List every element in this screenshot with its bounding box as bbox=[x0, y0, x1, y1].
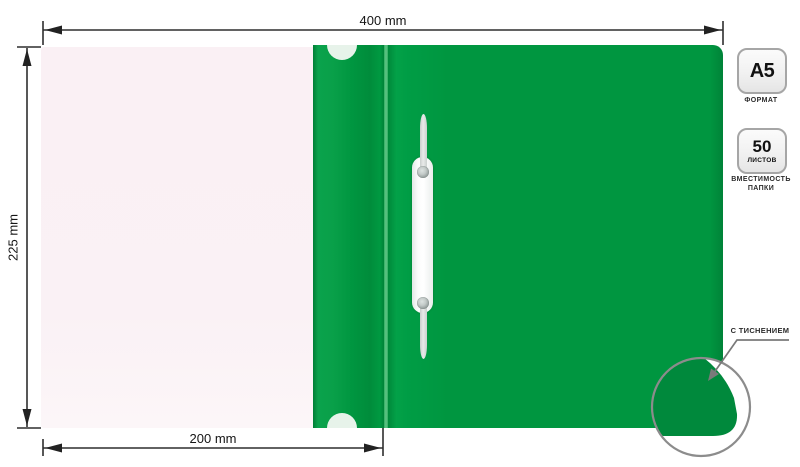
capacity-badge-unit: ЛИСТОВ bbox=[747, 157, 776, 164]
spine-top-notch bbox=[327, 45, 357, 60]
embossing-callout-label: С ТИСНЕНИЕМ bbox=[724, 326, 796, 335]
folder-back-cover bbox=[388, 45, 723, 428]
capacity-badge-caption: ВМЕСТИМОСТЬ ПАПКИ bbox=[722, 175, 800, 193]
format-badge-value: A5 bbox=[750, 61, 775, 81]
cover-width-dimension-label: 200 mm bbox=[163, 431, 263, 446]
binder-top-hole bbox=[417, 166, 429, 178]
capacity-badge: 50 ЛИСТОВ bbox=[737, 128, 787, 174]
capacity-badge-value: 50 bbox=[753, 138, 772, 155]
product-infographic: 400 mm 225 mm 200 mm A5 ФОРМАТ 50 ЛИСТОВ… bbox=[0, 0, 800, 467]
format-badge: A5 bbox=[737, 48, 787, 94]
spine-bottom-notch bbox=[327, 413, 357, 428]
format-badge-caption: ФОРМАТ bbox=[722, 96, 800, 105]
height-dimension-label: 225 mm bbox=[6, 208, 21, 268]
binder-bottom-hole bbox=[417, 297, 429, 309]
binder-strip bbox=[412, 157, 433, 313]
width-dimension-label: 400 mm bbox=[333, 13, 433, 28]
folder-front-cover bbox=[41, 47, 313, 428]
folder-spine bbox=[313, 45, 384, 428]
binder-top-prong bbox=[420, 114, 427, 174]
